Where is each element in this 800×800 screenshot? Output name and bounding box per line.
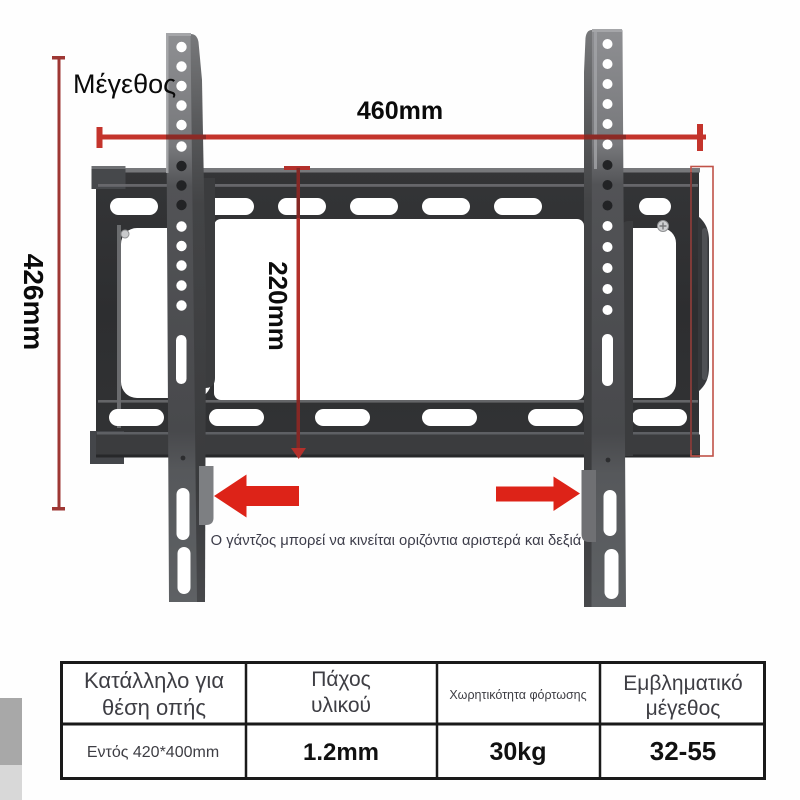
- svg-text:Χωρητικότητα φόρτωσης: Χωρητικότητα φόρτωσης: [449, 688, 586, 702]
- svg-text:υλικού: υλικού: [311, 694, 371, 717]
- svg-text:Εντός 420*400mm: Εντός 420*400mm: [87, 744, 219, 761]
- svg-text:426mm: 426mm: [18, 254, 49, 351]
- svg-text:Εμβληματικό: Εμβληματικό: [623, 672, 743, 695]
- svg-text:32-55: 32-55: [650, 736, 717, 766]
- svg-text:220mm: 220mm: [263, 261, 293, 351]
- svg-text:1.2mm: 1.2mm: [303, 739, 379, 766]
- svg-text:30kg: 30kg: [490, 738, 547, 766]
- svg-text:Ο γάντζος μπορεί να κινείται ο: Ο γάντζος μπορεί να κινείται οριζόντια α…: [211, 533, 582, 549]
- svg-text:Κατάλληλο για: Κατάλληλο για: [84, 668, 224, 693]
- svg-text:θέση οπής: θέση οπής: [102, 695, 206, 720]
- svg-text:Μέγεθος: Μέγεθος: [73, 69, 176, 99]
- svg-text:μέγεθος: μέγεθος: [646, 697, 721, 720]
- svg-text:Πάχος: Πάχος: [311, 668, 371, 691]
- svg-text:460mm: 460mm: [357, 97, 443, 125]
